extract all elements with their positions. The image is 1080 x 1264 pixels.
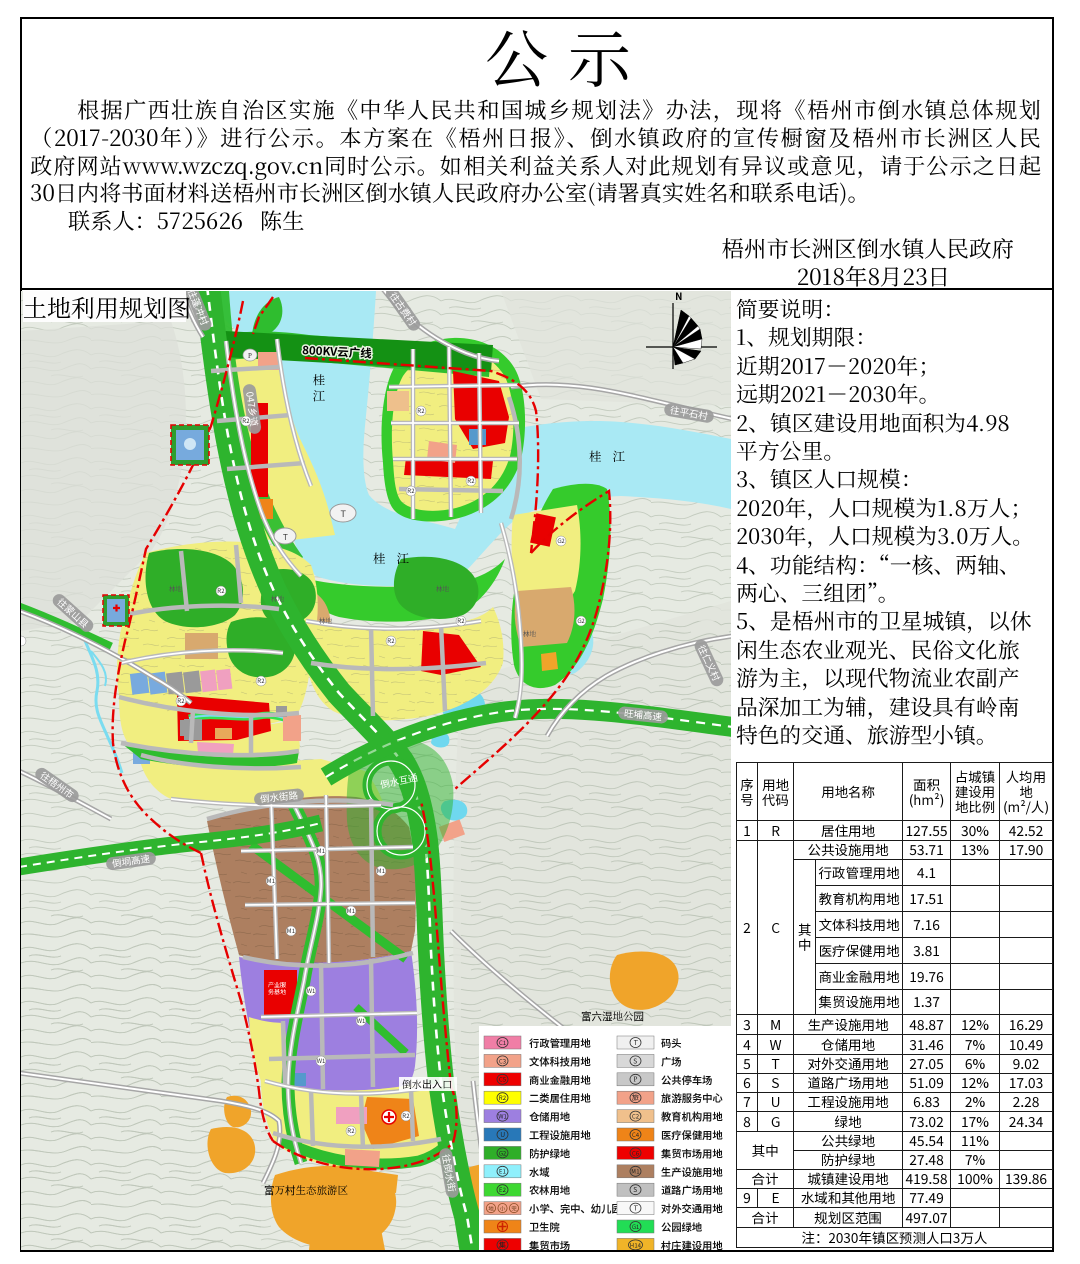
svg-text:林地: 林地	[436, 584, 450, 593]
svg-text:公园绿地: 公园绿地	[661, 1219, 703, 1234]
svg-text:M1: M1	[347, 906, 355, 915]
svg-text:R2: R2	[417, 406, 425, 415]
svg-text:W1: W1	[498, 1112, 507, 1121]
svg-text:集贸市场用地: 集贸市场用地	[661, 1145, 723, 1160]
svg-text:U: U	[500, 1130, 505, 1140]
svg-text:H14: H14	[630, 1240, 642, 1249]
svg-text:生产设施用地: 生产设施用地	[661, 1164, 723, 1179]
svg-text:C6: C6	[632, 1148, 640, 1157]
svg-text:P: P	[634, 1075, 638, 1085]
svg-text:W1: W1	[307, 986, 316, 995]
svg-text:R2: R2	[347, 1126, 355, 1135]
svg-text:R2: R2	[387, 636, 395, 645]
svg-text:倒水出入口: 倒水出入口	[402, 1076, 452, 1091]
svg-text:富六湿地公园: 富六湿地公园	[581, 1009, 644, 1024]
svg-text:R2: R2	[467, 476, 475, 485]
svg-text:集: 集	[499, 1240, 506, 1250]
svg-text:码头: 码头	[661, 1035, 682, 1050]
svg-text:C1: C1	[499, 1038, 506, 1047]
svg-text:桂 江: 桂 江	[589, 447, 629, 465]
svg-text:T: T	[340, 507, 345, 520]
svg-text:富万村生态旅游区: 富万村生态旅游区	[264, 1183, 348, 1198]
svg-text:林地: 林地	[523, 629, 537, 638]
svg-text:R2: R2	[457, 616, 465, 625]
svg-text:二类居住用地: 二类居住用地	[529, 1090, 591, 1105]
svg-text:林地: 林地	[169, 584, 183, 593]
svg-text:C4: C4	[632, 1130, 640, 1139]
svg-text:E1: E1	[499, 1167, 506, 1176]
svg-text:水域: 水域	[529, 1164, 550, 1179]
svg-text:S: S	[633, 1056, 637, 1066]
svg-text:M1: M1	[317, 846, 325, 855]
svg-text:N: N	[675, 291, 683, 303]
svg-text:对外交通用地: 对外交通用地	[661, 1201, 723, 1216]
svg-text:M1: M1	[267, 876, 275, 885]
svg-text:务基地: 务基地	[268, 987, 287, 996]
svg-text:广场: 广场	[661, 1053, 682, 1068]
svg-text:P: P	[248, 351, 252, 361]
svg-text:仓储用地: 仓储用地	[529, 1109, 571, 1124]
svg-text:E2: E2	[499, 1185, 507, 1194]
svg-text:G1: G1	[632, 1222, 639, 1231]
svg-text:行政管理用地: 行政管理用地	[529, 1035, 591, 1050]
svg-text:小: 小	[499, 1204, 506, 1212]
svg-text:W1: W1	[317, 1056, 326, 1065]
svg-text:M1: M1	[631, 1167, 639, 1176]
svg-text:林地: 林地	[271, 594, 285, 603]
svg-text:商业金融用地: 商业金融用地	[529, 1072, 591, 1087]
svg-text:医疗保健用地: 医疗保健用地	[661, 1127, 723, 1142]
svg-text:R2: R2	[257, 676, 265, 685]
svg-text:桂 江: 桂 江	[373, 549, 413, 567]
svg-text:村庄建设用地: 村庄建设用地	[661, 1237, 723, 1250]
svg-text:G2: G2	[557, 536, 565, 545]
svg-text:R2: R2	[242, 416, 250, 425]
svg-text:集贸市场: 集贸市场	[529, 1237, 571, 1250]
svg-text:农林用地: 农林用地	[529, 1182, 571, 1197]
svg-text:R2: R2	[402, 1111, 410, 1120]
svg-text:工程设施用地: 工程设施用地	[529, 1127, 591, 1142]
svg-text:C2: C2	[632, 1112, 640, 1121]
svg-text:教育机构用地: 教育机构用地	[661, 1109, 723, 1124]
svg-text:旅: 旅	[632, 1093, 639, 1103]
svg-text:卫生院: 卫生院	[529, 1219, 561, 1234]
svg-text:R2: R2	[407, 486, 415, 495]
svg-text:公共停车场: 公共停车场	[661, 1072, 713, 1087]
svg-text:S: S	[633, 1185, 637, 1195]
svg-text:M1: M1	[287, 926, 295, 935]
svg-text:M1: M1	[377, 866, 385, 875]
svg-text:C5: C5	[499, 1075, 507, 1084]
svg-text:小学、完中、幼儿园: 小学、完中、幼儿园	[529, 1201, 622, 1216]
svg-text:完: 完	[511, 1204, 517, 1212]
svg-text:R2: R2	[217, 586, 225, 595]
svg-text:道路广场用地: 道路广场用地	[661, 1182, 723, 1197]
svg-text:防护绿地: 防护绿地	[529, 1145, 571, 1160]
svg-text:R2: R2	[499, 1093, 507, 1102]
svg-text:C3: C3	[499, 1056, 506, 1065]
svg-text:林地: 林地	[319, 616, 333, 625]
svg-text:地: 地	[488, 1204, 494, 1212]
svg-text:G2: G2	[577, 616, 585, 625]
svg-text:旅游服务中心: 旅游服务中心	[661, 1090, 723, 1105]
svg-text:文体科技用地: 文体科技用地	[529, 1053, 591, 1068]
svg-text:W1: W1	[357, 1016, 366, 1025]
svg-text:G2: G2	[499, 1148, 507, 1157]
svg-text:T: T	[283, 532, 288, 543]
svg-text:R2: R2	[177, 696, 185, 705]
svg-text:桂江: 桂江	[310, 373, 328, 404]
